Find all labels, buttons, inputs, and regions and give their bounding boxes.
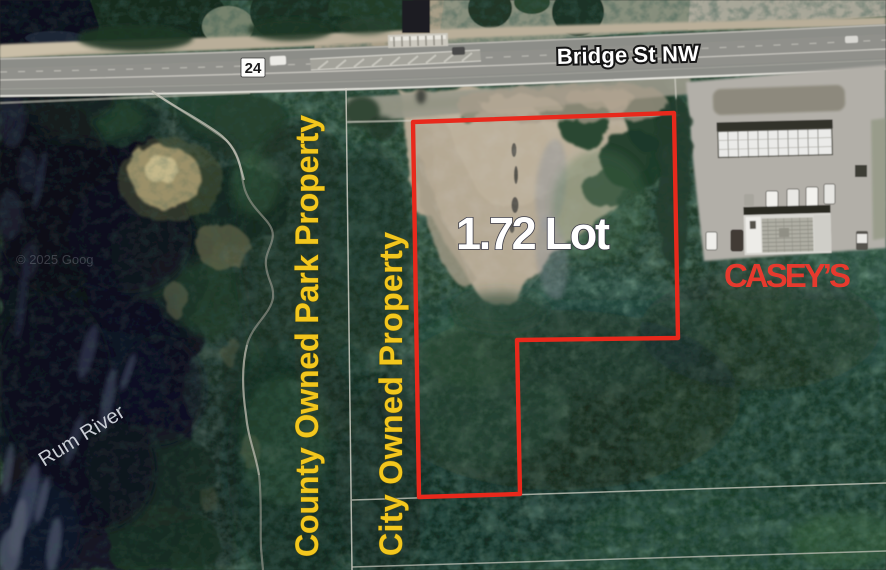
svg-text:City Owned Property: City Owned Property (373, 232, 409, 556)
svg-text:24: 24 (245, 60, 262, 77)
svg-text:CASEY’S: CASEY’S (724, 257, 851, 294)
svg-text:Bridge St NW: Bridge St NW (557, 41, 700, 69)
svg-text:© 2025 Goog: © 2025 Goog (16, 252, 94, 267)
svg-text:1.72 Lot: 1.72 Lot (456, 208, 610, 259)
svg-text:County Owned Park Property: County Owned Park Property (289, 115, 325, 557)
